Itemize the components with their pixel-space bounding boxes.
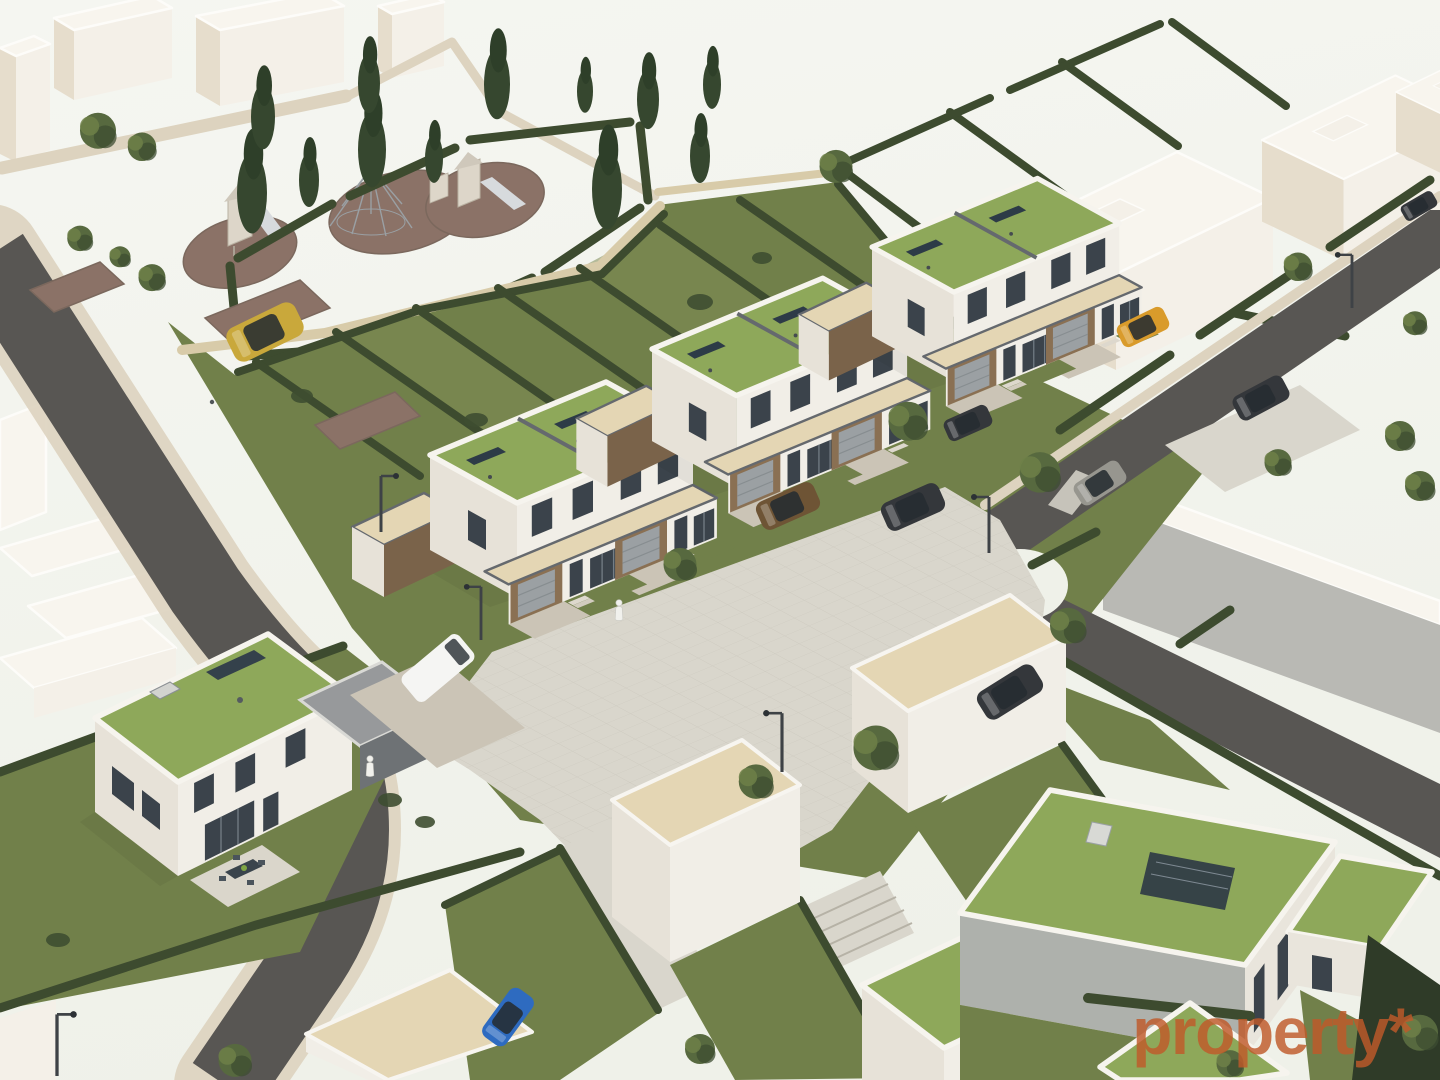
- aerial-render: [0, 0, 1440, 1080]
- render-viewport: property*: [0, 0, 1440, 1080]
